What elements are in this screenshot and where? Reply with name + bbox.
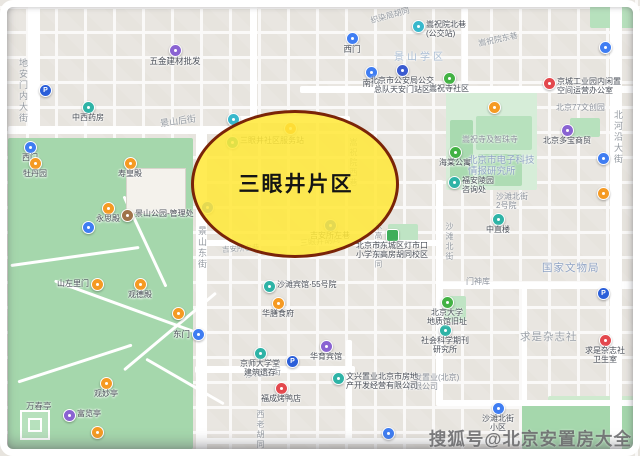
poi-marker-red[interactable] [543, 77, 556, 90]
poi-label: 寿皇殿 [118, 170, 142, 179]
screenshot-root: { "region_label": { "text": "三眼井片区" }, "… [0, 0, 640, 456]
poi-label: 沙滩宾馆·55号院 [277, 281, 337, 290]
pavilion-inner [28, 418, 42, 432]
poi-label: 西门 [343, 45, 360, 55]
poi-marker-orange[interactable] [91, 278, 104, 291]
road [440, 400, 638, 406]
poi-label: 京师大学堂建筑遗存 [240, 360, 280, 378]
poi-marker-blue[interactable] [382, 427, 395, 440]
poi-label: 北京多宝商贸 [543, 137, 591, 146]
poi-marker-blue[interactable] [82, 221, 95, 234]
pavilion-structure [20, 410, 50, 440]
poi-label: 富览亭 [77, 410, 101, 419]
street-label: 北河沿大街 [612, 110, 625, 165]
place-label: 门神库 [466, 277, 490, 286]
place-label: 景山学区 [394, 52, 446, 64]
poi-label: 观妙亭 [94, 390, 118, 399]
road [522, 284, 527, 404]
poi-marker-blue[interactable] [599, 41, 612, 54]
poi-label: 五金建材批发 [149, 57, 200, 67]
poi-marker-orange[interactable] [488, 101, 501, 114]
place-label: 北京市电子科技情报研究所 [468, 156, 535, 178]
road [250, 0, 257, 118]
green-area [476, 116, 532, 150]
poi-label: 北京市东城区灯市口小学东高房胡同校区 [356, 242, 428, 260]
poi-marker-park[interactable]: P [597, 287, 610, 300]
poi-label: 嵩祝寺社区 [429, 85, 469, 94]
street-label: 沙滩北街 [444, 222, 455, 262]
poi-label: 求是杂志社卫生室 [585, 347, 625, 365]
map-canvas[interactable]: 地安门内大街景山后街织染局胡同嵩祝院东巷景山东街三眼井胡同吉安所右巷沙滩后街西老… [0, 0, 640, 456]
poi-label: 北京市公安局公交总队天安门站区 [370, 77, 434, 95]
poi-label: 中西药房 [72, 114, 104, 123]
poi-marker-orange[interactable] [597, 187, 610, 200]
poi-marker-park[interactable]: P [39, 84, 52, 97]
watermark-text: 搜狐号@北京安置房大全 [429, 426, 632, 451]
poi-label: 牡丹园 [23, 170, 47, 179]
place-label: 求是杂志社 [520, 331, 578, 343]
poi-label: 华膳食府 [262, 310, 294, 319]
poi-label: 景山公园-管理处 [135, 210, 194, 219]
poi-label: 福成烤鸭店 [261, 395, 301, 404]
poi-marker-teal2[interactable] [412, 20, 425, 33]
region-title: 三眼井片区 [196, 168, 396, 198]
street-label: 西老胡同 [255, 410, 266, 450]
poi-label: 北京大学地质馆旧址 [427, 309, 467, 327]
poi-label: 福安陵园咨询处 [462, 177, 494, 195]
place-label: 沙滩北街2号院 [496, 192, 528, 210]
street-label: 地安门内大街 [17, 58, 30, 124]
green-area [570, 118, 600, 137]
poi-label: 文兴置业北京市房地产开发经营有限公司 [346, 373, 418, 391]
poi-marker-brown[interactable] [121, 209, 134, 222]
poi-marker-blue[interactable] [597, 152, 610, 165]
poi-label: 京城工业园内闲置空间运营办公室 [557, 78, 621, 96]
poi-marker-orange[interactable] [172, 307, 185, 320]
street-label: 景山东街 [196, 226, 209, 270]
poi-marker-purple[interactable] [63, 409, 76, 422]
poi-label: 观德殿 [128, 291, 152, 300]
poi-label: 嵩祝院北巷(公交站) [426, 21, 466, 39]
poi-marker-teal[interactable] [263, 280, 276, 293]
poi-label: 华育宾馆 [310, 353, 342, 362]
place-label: 国家文物局 [542, 262, 600, 274]
poi-marker-teal[interactable] [332, 372, 345, 385]
poi-marker-teal[interactable] [448, 176, 461, 189]
poi-marker-blue[interactable] [192, 328, 205, 341]
place-label: 万春亭 [26, 402, 52, 412]
poi-label: 社会科学期刊研究所 [421, 337, 469, 355]
poi-label: 海棠公寓 [439, 159, 471, 168]
poi-label: 中直楼 [486, 226, 510, 235]
poi-label: 东门 [173, 330, 190, 340]
poi-label: 山左里门 [57, 280, 89, 289]
poi-marker-park[interactable]: P [286, 355, 299, 368]
road [610, 6, 622, 456]
place-label: 北京77文创园 [556, 103, 605, 112]
place-label: 嵩祝寺及智珠寺 [462, 135, 518, 144]
poi-marker-orange[interactable] [91, 426, 104, 439]
poi-label: 永思殿 [96, 215, 120, 224]
